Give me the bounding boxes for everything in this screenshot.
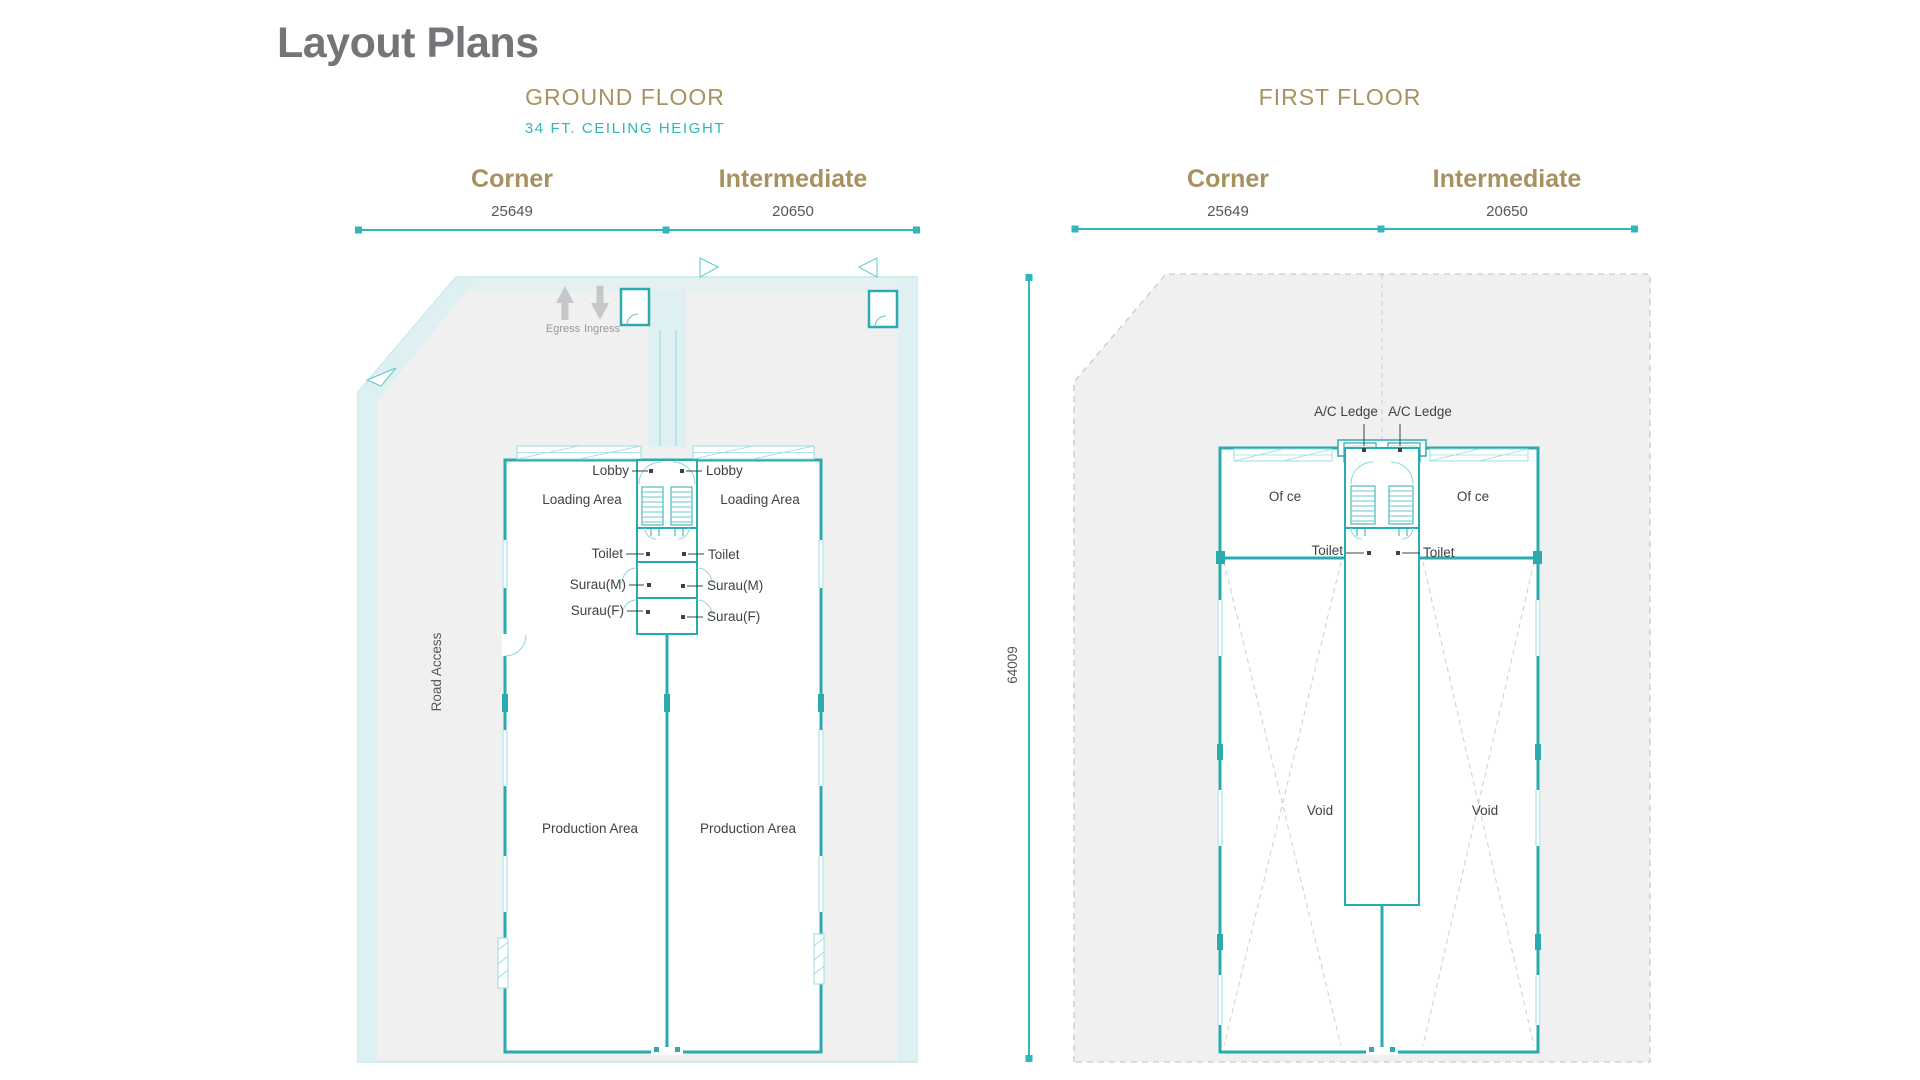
road-access-label: Road Access xyxy=(429,633,445,712)
ac-ledge-label-left: A/C Ledge xyxy=(1314,404,1378,420)
ingress-label: Ingress xyxy=(584,323,620,336)
ground-intermediate-unit-label: Intermediate xyxy=(719,164,868,194)
guard-house-right xyxy=(869,291,897,327)
first-floor-drawing xyxy=(1026,226,1651,1063)
toilet-label-left: Toilet xyxy=(591,546,623,562)
production-area-label-right: Production Area xyxy=(700,821,796,837)
ground-corner-width: 25649 xyxy=(491,203,533,221)
void-label-right: Void xyxy=(1472,803,1498,819)
first-corner-width: 25649 xyxy=(1207,203,1249,221)
ceiling-height-note: 34 FT. CEILING HEIGHT xyxy=(525,120,725,138)
overall-depth-dimension: 64009 xyxy=(1005,646,1021,684)
lobby-label-left: Lobby xyxy=(592,463,629,479)
first-intermediate-unit-label: Intermediate xyxy=(1433,164,1582,194)
surau-f-label-right: Surau(F) xyxy=(707,609,760,625)
toilet-label-first-left: Toilet xyxy=(1311,543,1343,559)
ground-corner-unit-label: Corner xyxy=(471,164,553,194)
page-title: Layout Plans xyxy=(277,18,539,70)
first-corner-unit-label: Corner xyxy=(1187,164,1269,194)
toilet-label-first-right: Toilet xyxy=(1423,545,1455,561)
lobby-label-right: Lobby xyxy=(706,463,743,479)
floor-plan-canvas xyxy=(0,0,1920,1080)
ground-intermediate-width: 20650 xyxy=(772,203,814,221)
production-area-label-left: Production Area xyxy=(542,821,638,837)
first-width-dimension xyxy=(1072,226,1639,233)
surau-m-label-left: Surau(M) xyxy=(570,577,626,593)
first-floor-heading: FIRST FLOOR xyxy=(1259,84,1422,112)
loading-area-label-right: Loading Area xyxy=(720,492,800,508)
ground-width-dimension xyxy=(355,227,920,234)
depth-dimension xyxy=(1026,274,1033,1062)
first-intermediate-width: 20650 xyxy=(1486,203,1528,221)
loading-area-label-left: Loading Area xyxy=(542,492,622,508)
surau-m-label-right: Surau(M) xyxy=(707,578,763,594)
ground-floor-heading: GROUND FLOOR xyxy=(525,84,725,112)
egress-label: Egress xyxy=(546,323,580,336)
office-label-left: Of ce xyxy=(1269,489,1301,505)
surau-f-label-left: Surau(F) xyxy=(571,603,624,619)
guard-house-left xyxy=(621,289,649,325)
void-label-left: Void xyxy=(1307,803,1333,819)
layout-plans-page: Layout Plans GROUND FLOOR 34 FT. CEILING… xyxy=(0,0,1920,1080)
toilet-label-right: Toilet xyxy=(708,547,740,563)
first-core xyxy=(1345,448,1419,905)
ac-ledge-label-right: A/C Ledge xyxy=(1388,404,1452,420)
office-label-right: Of ce xyxy=(1457,489,1489,505)
